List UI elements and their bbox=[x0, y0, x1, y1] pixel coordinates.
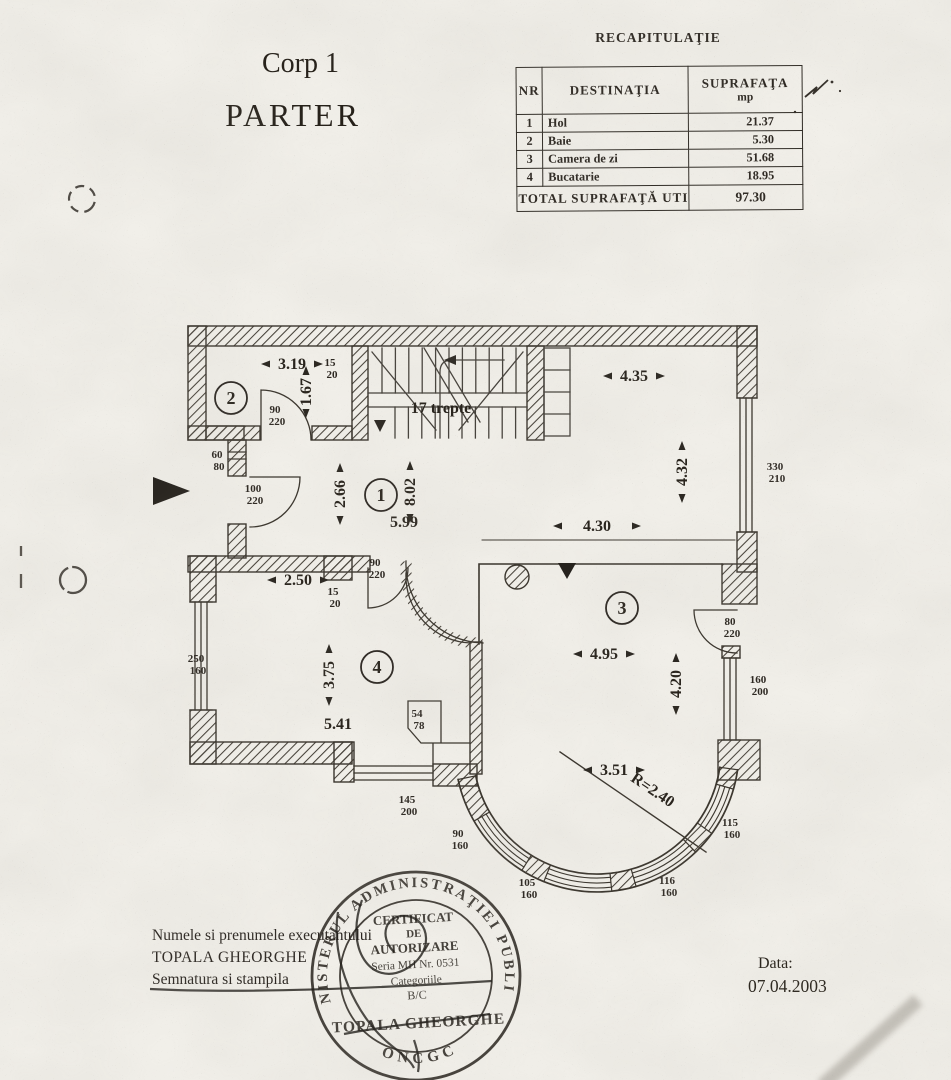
dim-arrow bbox=[603, 373, 612, 380]
bay-window-glass bbox=[634, 846, 690, 878]
entrance-arrow bbox=[153, 477, 190, 505]
dim-label: 3.19 bbox=[278, 356, 306, 373]
stamp-ring-top-text: MINISTERUL ADMINISTRAŢIEI PUBLICE bbox=[0, 0, 518, 1022]
wall-segment bbox=[527, 346, 544, 440]
col-header-nr: NR bbox=[516, 67, 542, 114]
bay-window-glass bbox=[705, 787, 725, 829]
window-kitchen-bottom bbox=[354, 766, 433, 780]
dim-arrow bbox=[337, 516, 344, 525]
wall-segment bbox=[324, 556, 352, 580]
wall-segment bbox=[188, 556, 370, 572]
room-number-circle bbox=[606, 592, 638, 624]
opening-label: 80 bbox=[214, 461, 226, 473]
opening-label: 116 bbox=[659, 875, 675, 887]
opening-label: 220 bbox=[369, 569, 386, 581]
bay-window-glass bbox=[701, 785, 720, 825]
dim-arrow bbox=[679, 441, 686, 450]
bay-window-glass bbox=[635, 849, 693, 882]
dim-arrow bbox=[553, 523, 562, 530]
room-number-circle bbox=[215, 382, 247, 414]
dim-arrow bbox=[326, 697, 333, 706]
opening-label: 90 bbox=[270, 404, 282, 416]
bay-pier bbox=[458, 776, 490, 821]
dim-label: 4.20 bbox=[668, 670, 685, 698]
dim-arrow bbox=[303, 409, 310, 418]
wall-segment bbox=[228, 524, 246, 558]
walls bbox=[188, 326, 760, 786]
plan-labels: 3.191.674.354.322.668.025.994.302.503.75… bbox=[188, 356, 786, 901]
dim-label: 8.02 bbox=[402, 478, 419, 506]
dim-arrow bbox=[326, 644, 333, 653]
dim-arrow bbox=[303, 366, 310, 375]
total-row: TOTAL SUPRAFAŢĂ UTILĂ 97.30 bbox=[517, 184, 803, 211]
scan-grain-layer bbox=[0, 0, 951, 1080]
dim-arrow bbox=[320, 577, 329, 584]
certification-stamp: MINISTERUL ADMINISTRAŢIEI PUBLICE ONCGC … bbox=[0, 0, 525, 1080]
north-triangle-marker bbox=[558, 563, 576, 579]
opening-label: 15 bbox=[328, 586, 340, 598]
table-row: 2 Baie 5.30 bbox=[516, 130, 802, 150]
window-cap bbox=[737, 398, 757, 532]
opening-label: 220 bbox=[269, 416, 286, 428]
shaft-outline bbox=[408, 701, 470, 764]
bay-window-glass bbox=[632, 842, 686, 873]
dim-label: 17 trepte bbox=[411, 400, 472, 417]
dim-label: 2.50 bbox=[284, 572, 312, 589]
executor-block: Numele si prenumele executantului TOPALA… bbox=[152, 925, 572, 991]
dim-arrow bbox=[573, 651, 582, 658]
wall-segment bbox=[737, 532, 757, 572]
bay-window-glass bbox=[709, 788, 730, 831]
pen-dot bbox=[839, 90, 841, 92]
dim-label: 4.35 bbox=[620, 368, 648, 385]
dim-label: 2.66 bbox=[332, 480, 349, 508]
opening-label: 200 bbox=[752, 686, 769, 698]
curved-wall bbox=[406, 567, 477, 643]
room3-boundary bbox=[479, 564, 722, 644]
floorplan: 3.191.674.354.322.668.025.994.302.503.75… bbox=[153, 326, 786, 901]
wall-segment bbox=[190, 710, 216, 764]
date-block: Data: 07.04.2003 bbox=[748, 955, 908, 997]
room-number: 4 bbox=[373, 657, 382, 677]
scan-blotch-layer bbox=[0, 0, 951, 1080]
pen-tick bbox=[805, 80, 828, 97]
dim-label: 3.75 bbox=[321, 661, 338, 689]
date-label: Data: bbox=[758, 955, 908, 973]
door-hall bbox=[368, 568, 408, 608]
opening-label: 160 bbox=[452, 840, 469, 852]
dim-label: 4.32 bbox=[674, 458, 691, 486]
wall-segment bbox=[206, 426, 260, 440]
wall-segment bbox=[228, 440, 246, 476]
closet-shelf bbox=[544, 370, 570, 414]
opening-label: 145 bbox=[399, 794, 416, 806]
date-value: 07.04.2003 bbox=[748, 976, 908, 997]
stair-walk-arrow bbox=[444, 355, 456, 365]
stair-down-arrow bbox=[374, 420, 386, 432]
bay-outer-wall bbox=[458, 770, 737, 892]
door-living bbox=[694, 610, 737, 653]
opening-label: 220 bbox=[724, 628, 741, 640]
wall-segment bbox=[190, 556, 216, 602]
punch-hole-top bbox=[64, 181, 101, 218]
closet-outline bbox=[544, 348, 570, 436]
dim-label: 4.30 bbox=[583, 518, 611, 535]
wall-segment bbox=[188, 326, 206, 440]
dim-label: 5.99 bbox=[390, 514, 418, 531]
room-number-circle bbox=[361, 651, 393, 683]
opening-label: 330 bbox=[767, 461, 784, 473]
col-header-unit: mp bbox=[690, 91, 801, 104]
staircase bbox=[368, 348, 570, 438]
radius-line bbox=[560, 752, 706, 852]
header-row: NR DESTINAŢIA SUPRAFAŢA mp bbox=[516, 65, 802, 114]
recap-table-container: NR DESTINAŢIA SUPRAFAŢA mp 1 Hol 21.37 2… bbox=[515, 65, 802, 212]
floor-title: PARTER bbox=[203, 97, 383, 134]
bay-inner-wall bbox=[476, 767, 720, 874]
room-number: 1 bbox=[377, 485, 386, 505]
opening-label: 160 bbox=[750, 674, 767, 686]
room-number-circle bbox=[365, 479, 397, 511]
dim-label: 5.41 bbox=[324, 716, 352, 733]
small-window-60x80 bbox=[228, 452, 246, 459]
curved-wall-edge bbox=[406, 573, 471, 643]
opening-label: 60 bbox=[212, 449, 224, 461]
opening-label: 15 bbox=[325, 357, 337, 369]
opening-label: 210 bbox=[769, 473, 786, 485]
window-cap bbox=[722, 658, 740, 740]
dim-arrow bbox=[337, 463, 344, 472]
wall-segment bbox=[722, 646, 740, 658]
dim-arrow bbox=[656, 373, 665, 380]
recap-table-title: RECAPITULAŢIE bbox=[513, 30, 803, 46]
door-room2 bbox=[261, 390, 311, 440]
bay-window-glass bbox=[482, 817, 527, 863]
dim-arrow bbox=[679, 494, 686, 503]
table-row: 4 Bucatarie 18.95 bbox=[517, 166, 803, 186]
wall-segment bbox=[190, 742, 352, 764]
dim-arrow bbox=[636, 767, 645, 774]
pen-dot bbox=[831, 81, 834, 84]
stamp-ring-bottom-text: ONCGC bbox=[379, 1041, 461, 1069]
opening-label: 160 bbox=[661, 887, 678, 899]
curved-wall-edge bbox=[406, 561, 483, 643]
opening-label: 80 bbox=[725, 616, 737, 628]
wall-segment bbox=[737, 326, 757, 398]
plan-marks bbox=[153, 477, 576, 589]
column bbox=[505, 565, 529, 589]
bay-window-glass bbox=[545, 878, 611, 888]
col-header-destinatia: DESTINAŢIA bbox=[542, 66, 688, 114]
wall-segment bbox=[718, 740, 760, 780]
recap-table: NR DESTINAŢIA SUPRAFAŢA mp 1 Hol 21.37 2… bbox=[515, 65, 803, 212]
opening-label: 105 bbox=[519, 877, 536, 889]
bay-window-glass bbox=[549, 869, 610, 878]
bay-pier bbox=[683, 823, 712, 852]
stamp-ring-text: MINISTERUL ADMINISTRAŢIEI PUBLICE bbox=[0, 0, 518, 1022]
window-right-upper bbox=[740, 398, 752, 532]
dim-arrow bbox=[626, 651, 635, 658]
opening-label: 115 bbox=[722, 817, 738, 829]
window-cap bbox=[190, 602, 212, 710]
wall-segment bbox=[352, 346, 368, 440]
wall-segment bbox=[722, 564, 757, 604]
room-number: 3 bbox=[618, 598, 627, 618]
stair-walk-line bbox=[440, 360, 504, 438]
stamp-oncgc-text: ONCGC bbox=[379, 1041, 461, 1069]
bay-window-glass bbox=[486, 814, 529, 859]
bay-window-glass bbox=[547, 873, 611, 883]
dim-label: 1.67 bbox=[298, 378, 315, 406]
opening-label: 100 bbox=[245, 483, 262, 495]
opening-label: 78 bbox=[414, 720, 426, 732]
wall-segment bbox=[334, 742, 354, 782]
opening-label: 90 bbox=[370, 557, 382, 569]
plan-lines bbox=[190, 390, 757, 852]
dim-arrow bbox=[632, 523, 641, 530]
floorplan-drawing: 3.191.674.354.322.668.025.994.302.503.75… bbox=[0, 0, 951, 1080]
corp-title: Corp 1 bbox=[228, 48, 373, 80]
bay-pier bbox=[716, 767, 737, 789]
dim-arrow bbox=[407, 514, 414, 523]
table-row: 3 Camera de zi 51.68 bbox=[517, 148, 803, 168]
opening-label: 160 bbox=[724, 829, 741, 841]
opening-label: 250 bbox=[188, 653, 205, 665]
dim-arrow bbox=[673, 653, 680, 662]
table-row: 1 Hol 21.37 bbox=[516, 112, 802, 132]
col-header-suprafata-label: SUPRAFAŢA bbox=[690, 75, 801, 92]
stair-break-line bbox=[372, 348, 523, 430]
dim-arrow bbox=[583, 767, 592, 774]
dim-label: 4.95 bbox=[590, 646, 618, 663]
dim-arrow bbox=[314, 361, 323, 368]
wall-segment bbox=[470, 642, 482, 774]
dim-arrow bbox=[267, 577, 276, 584]
window-kitchen-left bbox=[195, 602, 207, 710]
opening-label: 220 bbox=[247, 495, 264, 507]
stamp-holder-name: TOPALA GHEORGHE bbox=[331, 1010, 505, 1036]
door-entry bbox=[250, 477, 300, 527]
bay-window-wall bbox=[458, 767, 737, 892]
wall-segment bbox=[188, 426, 244, 440]
opening-label: 20 bbox=[330, 598, 342, 610]
wall-segment bbox=[312, 426, 352, 440]
scanned-page: Corp 1 PARTER RECAPITULAŢIE NR DESTINAŢI… bbox=[0, 0, 951, 1080]
wall-segment bbox=[433, 764, 477, 786]
signature-caption: Semnatura si stampila bbox=[152, 969, 572, 991]
dim-label: 3.51 bbox=[600, 762, 628, 779]
bay-window-glass bbox=[478, 819, 524, 867]
executor-caption: Numele si prenumele executantului bbox=[152, 925, 572, 947]
col-header-suprafata: SUPRAFAŢA mp bbox=[688, 65, 802, 113]
opening-label: 90 bbox=[453, 828, 465, 840]
window-living-right bbox=[724, 658, 736, 740]
wall-segment bbox=[188, 326, 757, 346]
dim-arrow bbox=[407, 461, 414, 470]
corner-crease bbox=[822, 1000, 918, 1080]
dim-arrow bbox=[673, 706, 680, 715]
stair-rail bbox=[368, 393, 527, 407]
executor-name: TOPALA GHEORGHE bbox=[152, 947, 572, 969]
opening-label: 160 bbox=[521, 889, 538, 901]
punch-hole-bottom bbox=[60, 567, 86, 593]
opening-label: 54 bbox=[412, 708, 424, 720]
opening-label: 200 bbox=[401, 806, 418, 818]
dim-arrow bbox=[261, 361, 270, 368]
opening-label: 160 bbox=[190, 665, 207, 677]
room-number: 2 bbox=[227, 388, 236, 408]
bay-pier bbox=[522, 855, 551, 882]
bay-pier bbox=[610, 869, 636, 891]
dim-label: R=2.40 bbox=[628, 770, 678, 811]
opening-label: 20 bbox=[327, 369, 339, 381]
